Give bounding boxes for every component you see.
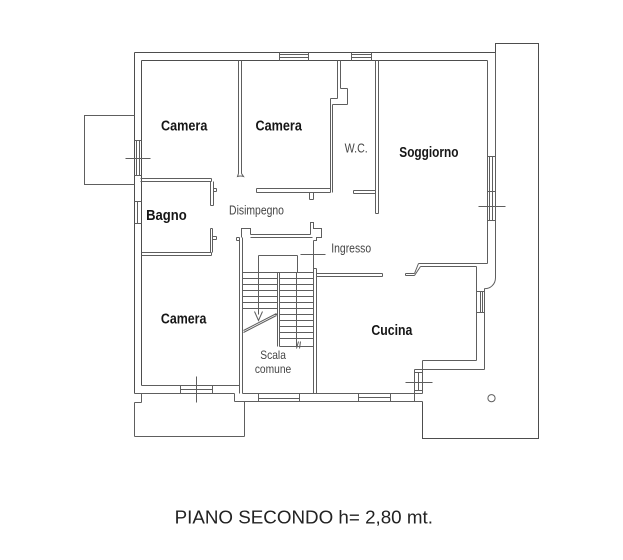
svg-text:comune: comune	[255, 363, 291, 376]
svg-text:W.C.: W.C.	[345, 140, 368, 155]
svg-text:Camera: Camera	[161, 116, 208, 133]
svg-text:Cucina: Cucina	[371, 322, 412, 338]
svg-text:Disimpegno: Disimpegno	[229, 203, 284, 217]
svg-text:Camera: Camera	[256, 116, 303, 133]
svg-text:Ingresso: Ingresso	[331, 241, 371, 255]
svg-text:Camera: Camera	[161, 311, 207, 327]
svg-text:PIANO SECONDO h= 2,80 mt.: PIANO SECONDO h= 2,80 mt.	[175, 506, 433, 527]
svg-text:Bagno: Bagno	[146, 206, 187, 223]
svg-text:Soggiorno: Soggiorno	[399, 144, 458, 161]
svg-text:Scala: Scala	[260, 349, 286, 362]
